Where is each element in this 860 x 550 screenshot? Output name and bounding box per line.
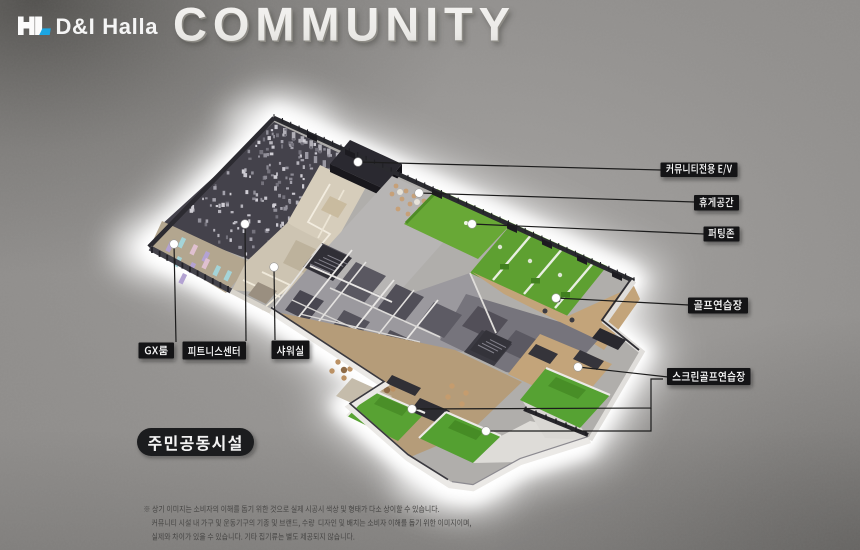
- svg-text:D&I Halla: D&I Halla: [56, 14, 159, 39]
